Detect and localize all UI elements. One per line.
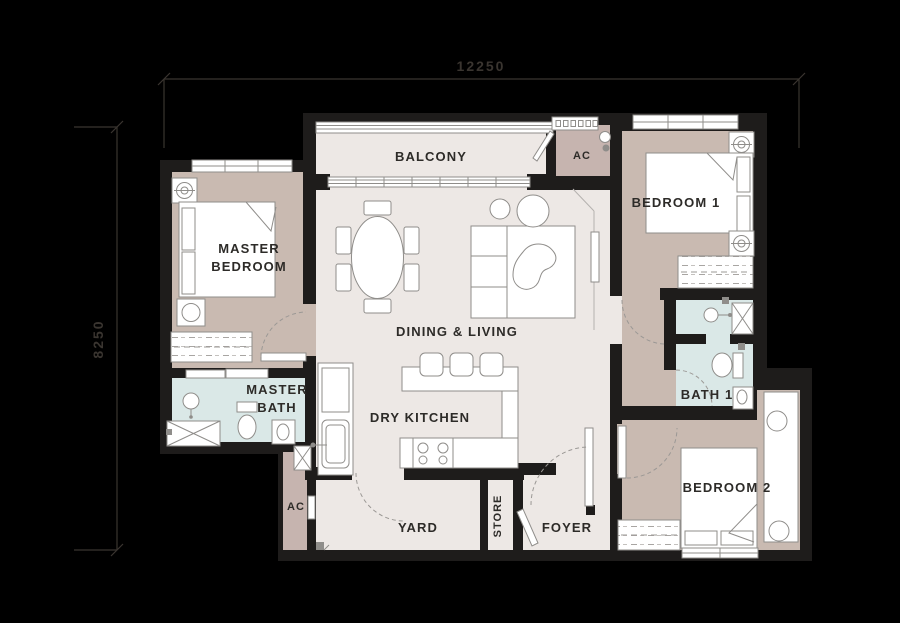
label-bedroom2: BEDROOM 2 <box>683 480 772 495</box>
vanity-icon <box>272 420 295 444</box>
toilet-icon <box>712 353 743 378</box>
bedroom1-window <box>633 115 738 129</box>
label-master-bath-1: MASTER <box>246 382 308 397</box>
stove-icon <box>413 438 453 468</box>
stool-icon <box>769 521 789 541</box>
fridge-icon <box>322 368 349 412</box>
side-table-icon <box>490 199 510 219</box>
ceiling-fixture-icon <box>172 178 197 203</box>
vanity-icon <box>733 387 753 409</box>
side-table-icon <box>517 195 549 227</box>
label-bath1: BATH 1 <box>681 387 734 402</box>
label-ac-top: AC <box>573 150 591 162</box>
label-dry-kitchen: DRY KITCHEN <box>370 410 470 425</box>
floor-plan-svg: 12250 8250 BALCONY AC BEDROOM 1 MASTER B… <box>0 0 900 623</box>
ceiling-fixture-icon <box>729 231 754 256</box>
door-leaf <box>591 232 599 282</box>
label-master-bedroom-2: BEDROOM <box>211 259 287 274</box>
door-leaf <box>261 353 306 361</box>
stool-icon <box>767 411 787 431</box>
bath-shelf <box>186 370 225 378</box>
label-bedroom1: BEDROOM 1 <box>632 195 721 210</box>
dimension-top-label: 12250 <box>457 58 506 74</box>
stool-icon <box>420 353 443 376</box>
stool-icon <box>480 353 503 376</box>
living-glazing <box>328 177 530 187</box>
wardrobe-icon <box>678 256 753 288</box>
bed-icon <box>681 448 757 548</box>
label-store: STORE <box>492 495 504 538</box>
label-foyer: FOYER <box>542 520 592 535</box>
shaft-icon <box>732 303 753 334</box>
sliding-door-leaf <box>226 369 268 378</box>
label-yard: YARD <box>398 520 438 535</box>
door-leaf <box>618 426 626 478</box>
label-master-bath-2: BATH <box>257 400 297 415</box>
floor-plan-page: 12250 8250 BALCONY AC BEDROOM 1 MASTER B… <box>0 0 900 623</box>
ac-vent <box>552 117 598 130</box>
shaft-icon <box>294 446 311 470</box>
master-bedroom-window <box>192 160 292 172</box>
toilet-icon <box>237 402 257 439</box>
stool-icon <box>450 353 473 376</box>
label-ac-bottom: AC <box>287 501 305 513</box>
ac-access-panel <box>308 496 315 519</box>
dimension-left-label: 8250 <box>90 319 106 358</box>
balcony-rail <box>316 122 553 133</box>
door-leaf <box>585 428 593 506</box>
nightstand-icon <box>177 299 205 326</box>
shower-icon <box>167 421 220 446</box>
label-balcony: BALCONY <box>395 149 467 164</box>
label-dining-living: DINING & LIVING <box>396 324 518 339</box>
bedroom2-window <box>682 548 758 558</box>
bed-icon <box>646 153 753 233</box>
label-master-bedroom-1: MASTER <box>218 241 280 256</box>
wardrobe-icon <box>171 332 252 362</box>
wardrobe-icon <box>618 520 680 550</box>
